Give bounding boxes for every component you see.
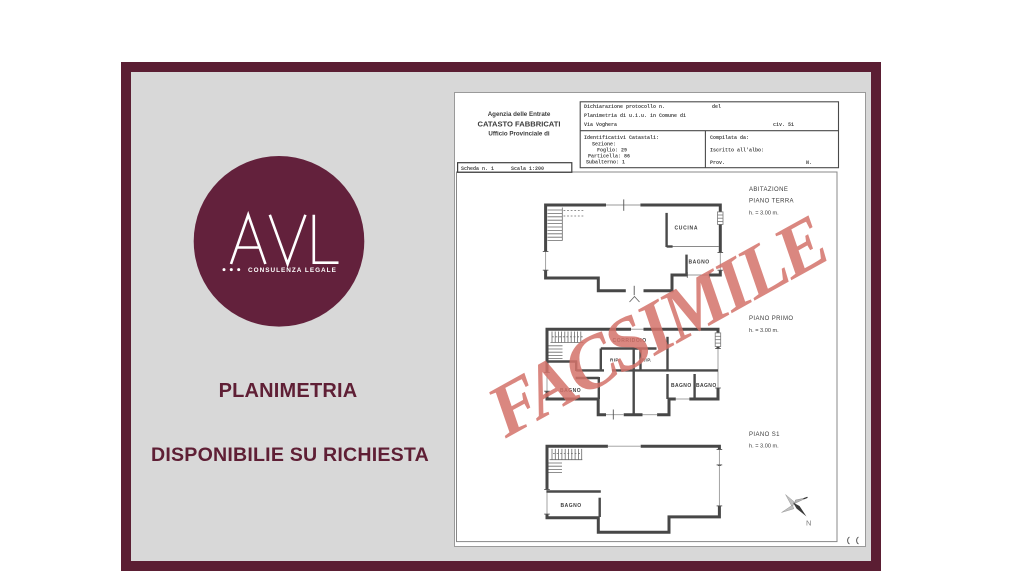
svg-text:CATASTO FABBRICATI: CATASTO FABBRICATI bbox=[478, 120, 561, 129]
svg-text:BAGNO: BAGNO bbox=[671, 383, 692, 389]
svg-text:Iscritto all'albo:: Iscritto all'albo: bbox=[710, 148, 764, 154]
svg-text:Scheda n. 1: Scheda n. 1 bbox=[461, 166, 494, 172]
svg-text:CUCINA: CUCINA bbox=[675, 226, 699, 232]
svg-text:PIANO TERRA: PIANO TERRA bbox=[749, 199, 794, 205]
svg-text:Identificativi Catastali:: Identificativi Catastali: bbox=[584, 135, 659, 141]
svg-text:h. = 3.00 m.: h. = 3.00 m. bbox=[749, 328, 779, 334]
svg-text:ABITAZIONE: ABITAZIONE bbox=[749, 187, 788, 193]
svg-text:Ufficio Provinciale di: Ufficio Provinciale di bbox=[488, 131, 549, 138]
svg-text:Prov.: Prov. bbox=[710, 160, 725, 166]
svg-text:CONSULENZA LEGALE: CONSULENZA LEGALE bbox=[248, 267, 337, 274]
svg-text:Compilata da:: Compilata da: bbox=[710, 135, 749, 141]
svg-text:PIANO S1: PIANO S1 bbox=[749, 432, 780, 438]
svg-text:Dichiarazione protocollo n.: Dichiarazione protocollo n. bbox=[584, 104, 665, 110]
svg-text:N: N bbox=[806, 519, 811, 528]
svg-text:del: del bbox=[712, 104, 721, 110]
svg-text:Subalterno: 1: Subalterno: 1 bbox=[586, 160, 625, 166]
svg-text:civ. 51: civ. 51 bbox=[773, 122, 794, 128]
svg-text:BAGNO: BAGNO bbox=[561, 503, 582, 509]
svg-text:N.: N. bbox=[806, 160, 812, 166]
svg-text:Planimetria di u.i.u. in Comun: Planimetria di u.i.u. in Comune di bbox=[584, 113, 686, 119]
svg-text:Agenzia delle Entrate: Agenzia delle Entrate bbox=[488, 111, 551, 118]
svg-text:Via Voghera: Via Voghera bbox=[584, 122, 617, 128]
svg-text:BAGNO: BAGNO bbox=[696, 383, 717, 389]
svg-text:Scala 1:200: Scala 1:200 bbox=[511, 166, 544, 172]
svg-text:h. = 3.00 m.: h. = 3.00 m. bbox=[749, 444, 779, 450]
